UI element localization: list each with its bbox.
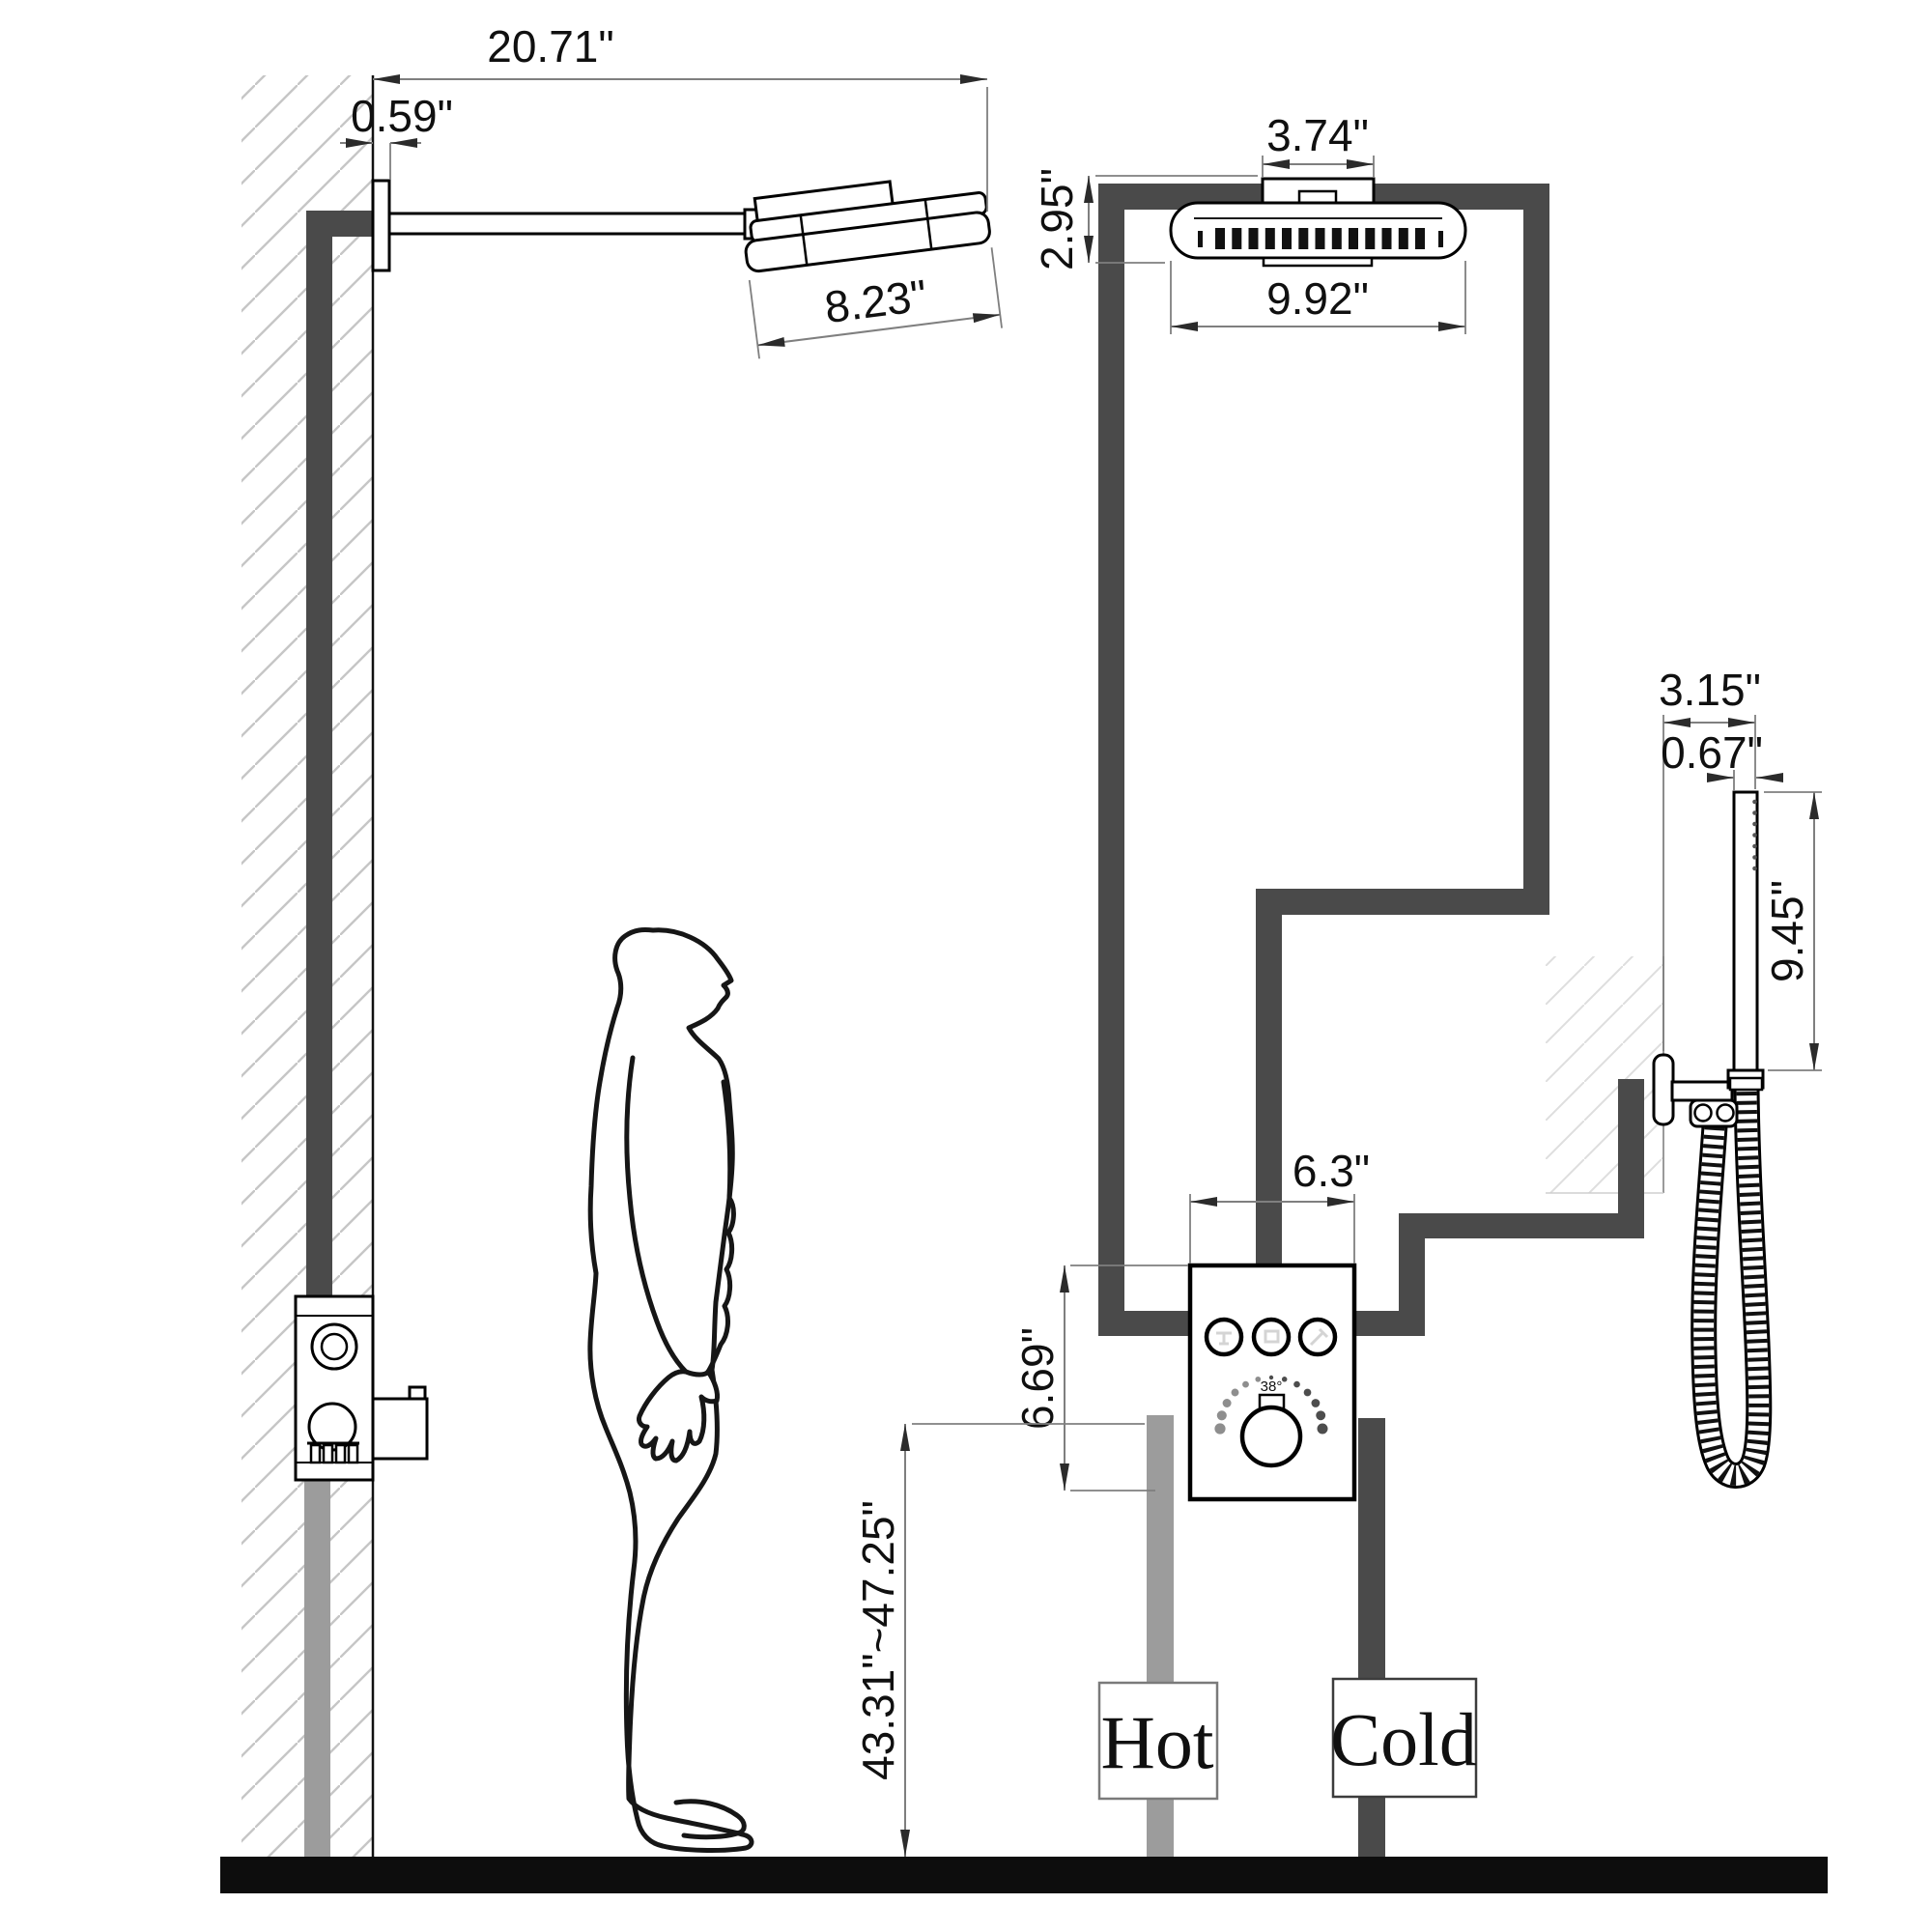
right-drop-jog bbox=[1256, 889, 1549, 915]
hand-shower-wall-patch bbox=[1546, 956, 1663, 1193]
dim-head-length: 8.23" bbox=[822, 270, 930, 332]
shower-hose bbox=[1704, 1088, 1759, 1476]
head-pipe-left-drop bbox=[1098, 184, 1124, 1336]
valve-handle bbox=[373, 1399, 427, 1459]
arm-wall-flange bbox=[373, 181, 389, 270]
rain-head-bottom-tab bbox=[1264, 258, 1372, 266]
dim-head-height: 2.95" bbox=[1032, 168, 1082, 270]
person-silhouette bbox=[590, 930, 752, 1851]
dim-wand-length: 9.45" bbox=[1762, 880, 1812, 982]
holder-clamp bbox=[1730, 1078, 1762, 1090]
wall-pipe-lower bbox=[304, 1476, 330, 1857]
valve-port-top-inner bbox=[322, 1334, 347, 1359]
hand-feed-run bbox=[1399, 1213, 1644, 1238]
dim-hand-mount-width: 3.15" bbox=[1659, 665, 1761, 715]
dim-install-height: 43.31"~47.25" bbox=[853, 1500, 903, 1780]
temp-knob bbox=[1242, 1407, 1300, 1465]
mixer-valve-panel: 38° bbox=[1190, 1265, 1354, 1499]
dim-valve-height: 6.69" bbox=[1012, 1327, 1063, 1430]
supply-labels: Hot Cold bbox=[1099, 1679, 1477, 1799]
rain-head-slots bbox=[1198, 228, 1443, 249]
shower-arm bbox=[389, 213, 749, 234]
dim-arm-reach: 20.71" bbox=[487, 21, 613, 71]
shower-head-side: 8.23" bbox=[739, 170, 1002, 358]
dim-flange-offset: 0.59" bbox=[351, 91, 453, 141]
wall-pipe-riser bbox=[306, 211, 332, 1298]
diagram-canvas: 8.23" 38° bbox=[0, 0, 1932, 1932]
temp-marker-label: 38° bbox=[1261, 1378, 1283, 1395]
dim-bracket-width: 3.74" bbox=[1266, 110, 1369, 160]
dimensions: 20.71" 0.59" 2.95" 3.74" 9.92" 6.3" 6.69… bbox=[340, 21, 1822, 1857]
valve-inlet-top bbox=[1256, 889, 1282, 1290]
shower-arm-assembly: 8.23" bbox=[373, 170, 1002, 358]
hose-nut-left bbox=[1695, 1105, 1712, 1122]
concealed-pipes-dark bbox=[306, 184, 1644, 1857]
dim-valve-width: 6.3" bbox=[1293, 1146, 1370, 1196]
holder-arm bbox=[1672, 1082, 1732, 1100]
supply-pipes-light bbox=[304, 1415, 1174, 1857]
hot-label: Hot bbox=[1101, 1700, 1214, 1784]
hand-feed-riser2 bbox=[1618, 1079, 1644, 1238]
cold-label: Cold bbox=[1330, 1697, 1477, 1781]
valve-inlet-left bbox=[1098, 1311, 1192, 1336]
dim-head-width: 9.92" bbox=[1266, 273, 1369, 324]
hose-nut-right bbox=[1718, 1105, 1734, 1122]
head-pipe-right-drop bbox=[1523, 184, 1549, 915]
in-wall-valve-side bbox=[296, 1296, 427, 1480]
installation-diagram: 8.23" 38° bbox=[0, 0, 1932, 1932]
valve-button-tub bbox=[1254, 1320, 1289, 1354]
dim-wand-thickness: 0.67" bbox=[1661, 727, 1763, 778]
floor-line bbox=[220, 1857, 1828, 1893]
hand-shower-assembly bbox=[1654, 792, 1763, 1476]
holder-wall-flange bbox=[1654, 1055, 1673, 1124]
